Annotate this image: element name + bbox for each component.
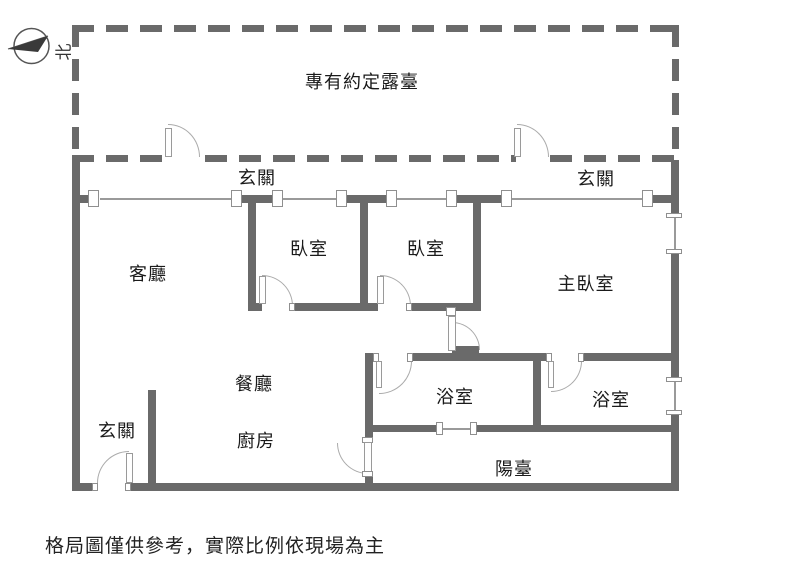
bedroom-bottom-wall-seg1 xyxy=(248,303,262,311)
front-window-mullion8 xyxy=(642,190,653,207)
front-window-glass4 xyxy=(512,198,642,200)
balcony-top-wall-seg2 xyxy=(477,425,679,432)
bathroom2-door-arc xyxy=(551,361,582,392)
bathroom-divider-wall xyxy=(533,356,541,430)
room-label-entry-top-left: 玄關 xyxy=(238,164,276,190)
room-label-dining: 餐廳 xyxy=(235,370,273,396)
entry-door-leaf xyxy=(126,453,133,483)
front-window-mullion2 xyxy=(231,190,242,207)
front-window-mullion4 xyxy=(336,190,347,207)
floor-plan: 北 xyxy=(0,0,797,575)
bottom-wall-seg2 xyxy=(130,483,679,491)
bedroom1-door-post xyxy=(289,303,295,311)
balcony-door-leaf xyxy=(364,442,372,472)
room-label-entry-top-right: 玄關 xyxy=(577,165,615,191)
bedroom1-door-leaf xyxy=(259,276,266,304)
front-wall-seg2 xyxy=(242,195,273,203)
room-label-bathroom2: 浴室 xyxy=(592,386,630,412)
bedroom2-right-wall xyxy=(473,203,481,310)
room-label-entry-bottom: 玄關 xyxy=(98,417,136,443)
disclaimer-note: 格局圖僅供參考，實際比例依現場為主 xyxy=(45,531,385,558)
bathroom1-door-leaf xyxy=(376,361,382,388)
front-wall-seg4 xyxy=(457,195,502,203)
bedroom2-door-arc xyxy=(380,275,411,306)
right-window2-cap-bottom xyxy=(666,410,682,415)
terrace-door2-arc xyxy=(517,124,549,157)
balcony-window-post-right xyxy=(470,422,477,435)
right-window1-cap-top xyxy=(666,213,682,218)
bathroom1-door-post-right xyxy=(407,353,413,362)
room-label-kitchen: 廚房 xyxy=(237,427,275,453)
room-label-balcony: 陽臺 xyxy=(495,455,533,481)
front-window-glass1 xyxy=(100,198,231,200)
front-wall-seg3 xyxy=(347,195,386,203)
terrace-wall-bottom-seg2 xyxy=(205,155,516,162)
front-window-mullion3 xyxy=(272,190,283,207)
bedroom2-door-post xyxy=(406,303,412,311)
front-window-mullion7 xyxy=(501,190,512,207)
master-door-post xyxy=(446,307,456,316)
front-window-glass2 xyxy=(283,198,336,200)
terrace-door1-arc xyxy=(168,124,200,157)
entry-door-arc xyxy=(97,451,129,483)
bathroom2-door-leaf xyxy=(548,361,554,388)
balcony-window-glass xyxy=(443,428,470,430)
kitchen-partition-wall xyxy=(148,390,156,491)
right-window2-glass xyxy=(674,382,676,410)
bedroom1-left-wall xyxy=(248,203,256,310)
front-window-mullion6 xyxy=(446,190,457,207)
terrace-wall-right xyxy=(672,25,679,160)
terrace-door2-leaf xyxy=(514,128,521,157)
front-window-glass3 xyxy=(397,198,446,200)
entry-door-post-right xyxy=(125,483,131,491)
right-window1-glass xyxy=(674,218,676,249)
terrace-wall-bottom-seg1 xyxy=(72,155,167,162)
master-door-arc xyxy=(452,322,480,350)
balcony-top-wall-seg1 xyxy=(365,425,437,432)
left-exterior-wall xyxy=(72,160,80,491)
bedroom-divider-wall xyxy=(360,203,368,310)
room-label-bedroom2: 臥室 xyxy=(407,235,445,261)
right-exterior-wall-seg1 xyxy=(671,160,679,213)
bathroom2-door-post-right xyxy=(578,353,584,362)
bedroom1-door-arc xyxy=(262,275,293,306)
right-window1-cap-bottom xyxy=(666,249,682,254)
terrace-door1-leaf xyxy=(165,128,172,157)
room-label-master-bedroom: 主臥室 xyxy=(558,270,615,296)
balcony-door-cap-bottom xyxy=(362,471,373,477)
room-label-bathroom1: 浴室 xyxy=(436,383,474,409)
right-window2-cap-top xyxy=(666,377,682,382)
terrace-wall-bottom-seg3 xyxy=(550,155,679,162)
terrace-wall-top xyxy=(72,25,679,32)
balcony-window-post-left xyxy=(436,422,443,435)
terrace-label: 專有約定露臺 xyxy=(305,68,419,94)
bathroom-top-wall-seg2 xyxy=(412,353,549,361)
bedroom-bottom-wall-seg2 xyxy=(294,303,378,311)
master-door-leaf xyxy=(448,316,456,351)
bedroom2-door-leaf xyxy=(377,276,384,304)
compass-north-label: 北 xyxy=(55,44,74,61)
room-label-bedroom1: 臥室 xyxy=(290,235,328,261)
front-window-mullion5 xyxy=(386,190,397,207)
room-label-living: 客廳 xyxy=(129,260,167,286)
bathroom1-door-arc xyxy=(379,361,412,394)
front-window-mullion1 xyxy=(88,190,99,207)
compass-north-icon: 北 xyxy=(0,20,86,82)
bathroom-top-wall-seg3 xyxy=(583,353,679,361)
entry-door-post-left xyxy=(92,483,98,491)
